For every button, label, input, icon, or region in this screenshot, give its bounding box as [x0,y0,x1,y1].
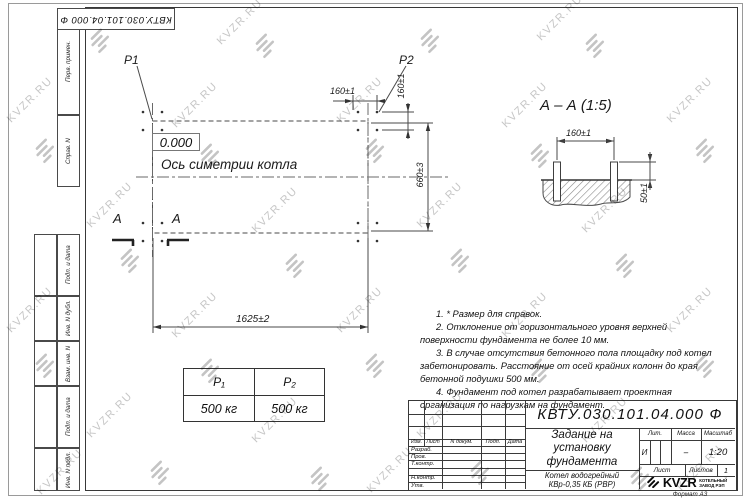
technical-notes: 1. * Размер для справок. 2. Отклонение о… [420,308,722,412]
plan-p2-label: P2 [399,53,414,67]
tb-role-prov: Пров. [409,453,442,460]
dim-160-side: 160±1 [396,72,406,100]
logo-subtext-line2: ЗАВОД РЭП [699,483,724,488]
tb-role-utv: Утв. [409,482,442,489]
tb-product: Котел водогрейный КВр-0,35 КБ (РВР) [525,470,639,489]
title-block: Изм. Лист N докум. Подп. Дата Разраб. Пр… [408,400,737,491]
drawing-sheet: Перв. примен. Справ. N Подп. и дата Инв.… [0,0,750,500]
tb-product-line1: Котел водогрейный [545,471,619,480]
anchor-bolt-right [611,162,618,201]
dim-1625: 1625±2 [236,314,269,325]
anchor-bolt-left [554,162,561,201]
note-1: 1. * Размер для справок. [420,308,722,321]
logo-text: KVZR [663,475,696,490]
logo-subtext: КОТЕЛЬНЫЙ ЗАВОД РЭП [699,478,727,488]
tb-role-tkontr: Т.контр. [409,460,442,467]
tb-scale-label: Масштаб [701,428,735,440]
tb-lit-value: И [639,440,650,464]
tb-lit-label: Лит. [639,428,671,440]
dim-660: 660±3 [415,158,425,192]
tb-company-logo: KVZR КОТЕЛЬНЫЙ ЗАВОД РЭП [639,476,735,489]
section-letter-right: A [172,211,181,226]
load-table-header-p2: P₂ [254,369,324,395]
elevation-mark: 0.000 [152,133,200,151]
tb-massa-value: – [671,440,701,464]
tb-role-razrab: Разраб. [409,446,442,453]
tb-title-line3: фундамента [547,456,618,470]
tb-col-list: Лист [424,439,442,447]
kvzr-logo-icon [647,477,660,488]
tb-product-line2: КВр-0,35 КБ (РВР) [549,480,616,489]
note-3: 3. В случае отсутствия бетонного пола пл… [420,347,722,386]
tb-col-ndoc: N докум. [442,439,481,447]
load-table-value-p2: 500 кг [254,395,324,421]
section-letter-left: A [113,211,122,226]
dim-160-top: 160±1 [330,86,355,96]
section-dim-160: 160±1 [566,128,591,138]
tb-col-podp: Подп. [481,439,505,447]
load-table-header-p1: P₁ [184,369,254,395]
tb-role-nkontr: Н.контр. [409,475,442,482]
plan-p1-label: P1 [124,53,139,67]
load-table-value-p1: 500 кг [184,395,254,421]
section-dim-50: 50±1 [639,178,649,208]
tb-title-line1: Задание на [551,429,612,443]
tb-document-title: Задание на установку фундамента [525,428,639,470]
load-table: P₁ P₂ 500 кг 500 кг [183,368,325,422]
axis-of-symmetry-label: Ось симетрии котла [161,157,297,172]
section-cut-marks [112,240,189,246]
tb-doc-number: КВТУ.030.101.04.000 Ф [525,401,735,428]
tb-col-izm: Изм. [409,439,424,447]
note-2: 2. Отклонение от горизонтального уровня … [420,321,722,347]
tb-title-line2: установку [553,442,610,456]
section-title: А – А (1:5) [540,97,612,114]
tb-massa-label: Масса [671,428,701,440]
format-label: Формат А3 [640,491,740,498]
plan-view-lines [136,66,448,333]
elevation-value: 0.000 [160,135,193,150]
tb-scale-value: 1:20 [701,440,735,464]
tb-col-data: Дата [505,439,525,447]
